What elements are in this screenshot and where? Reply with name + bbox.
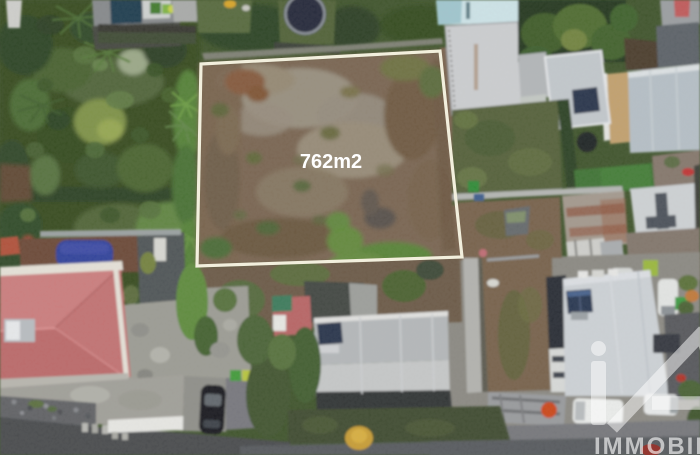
svg-text:762m2: 762m2 <box>300 151 362 173</box>
svg-text:IMMOBILIER: IMMOBILIER <box>594 433 700 455</box>
